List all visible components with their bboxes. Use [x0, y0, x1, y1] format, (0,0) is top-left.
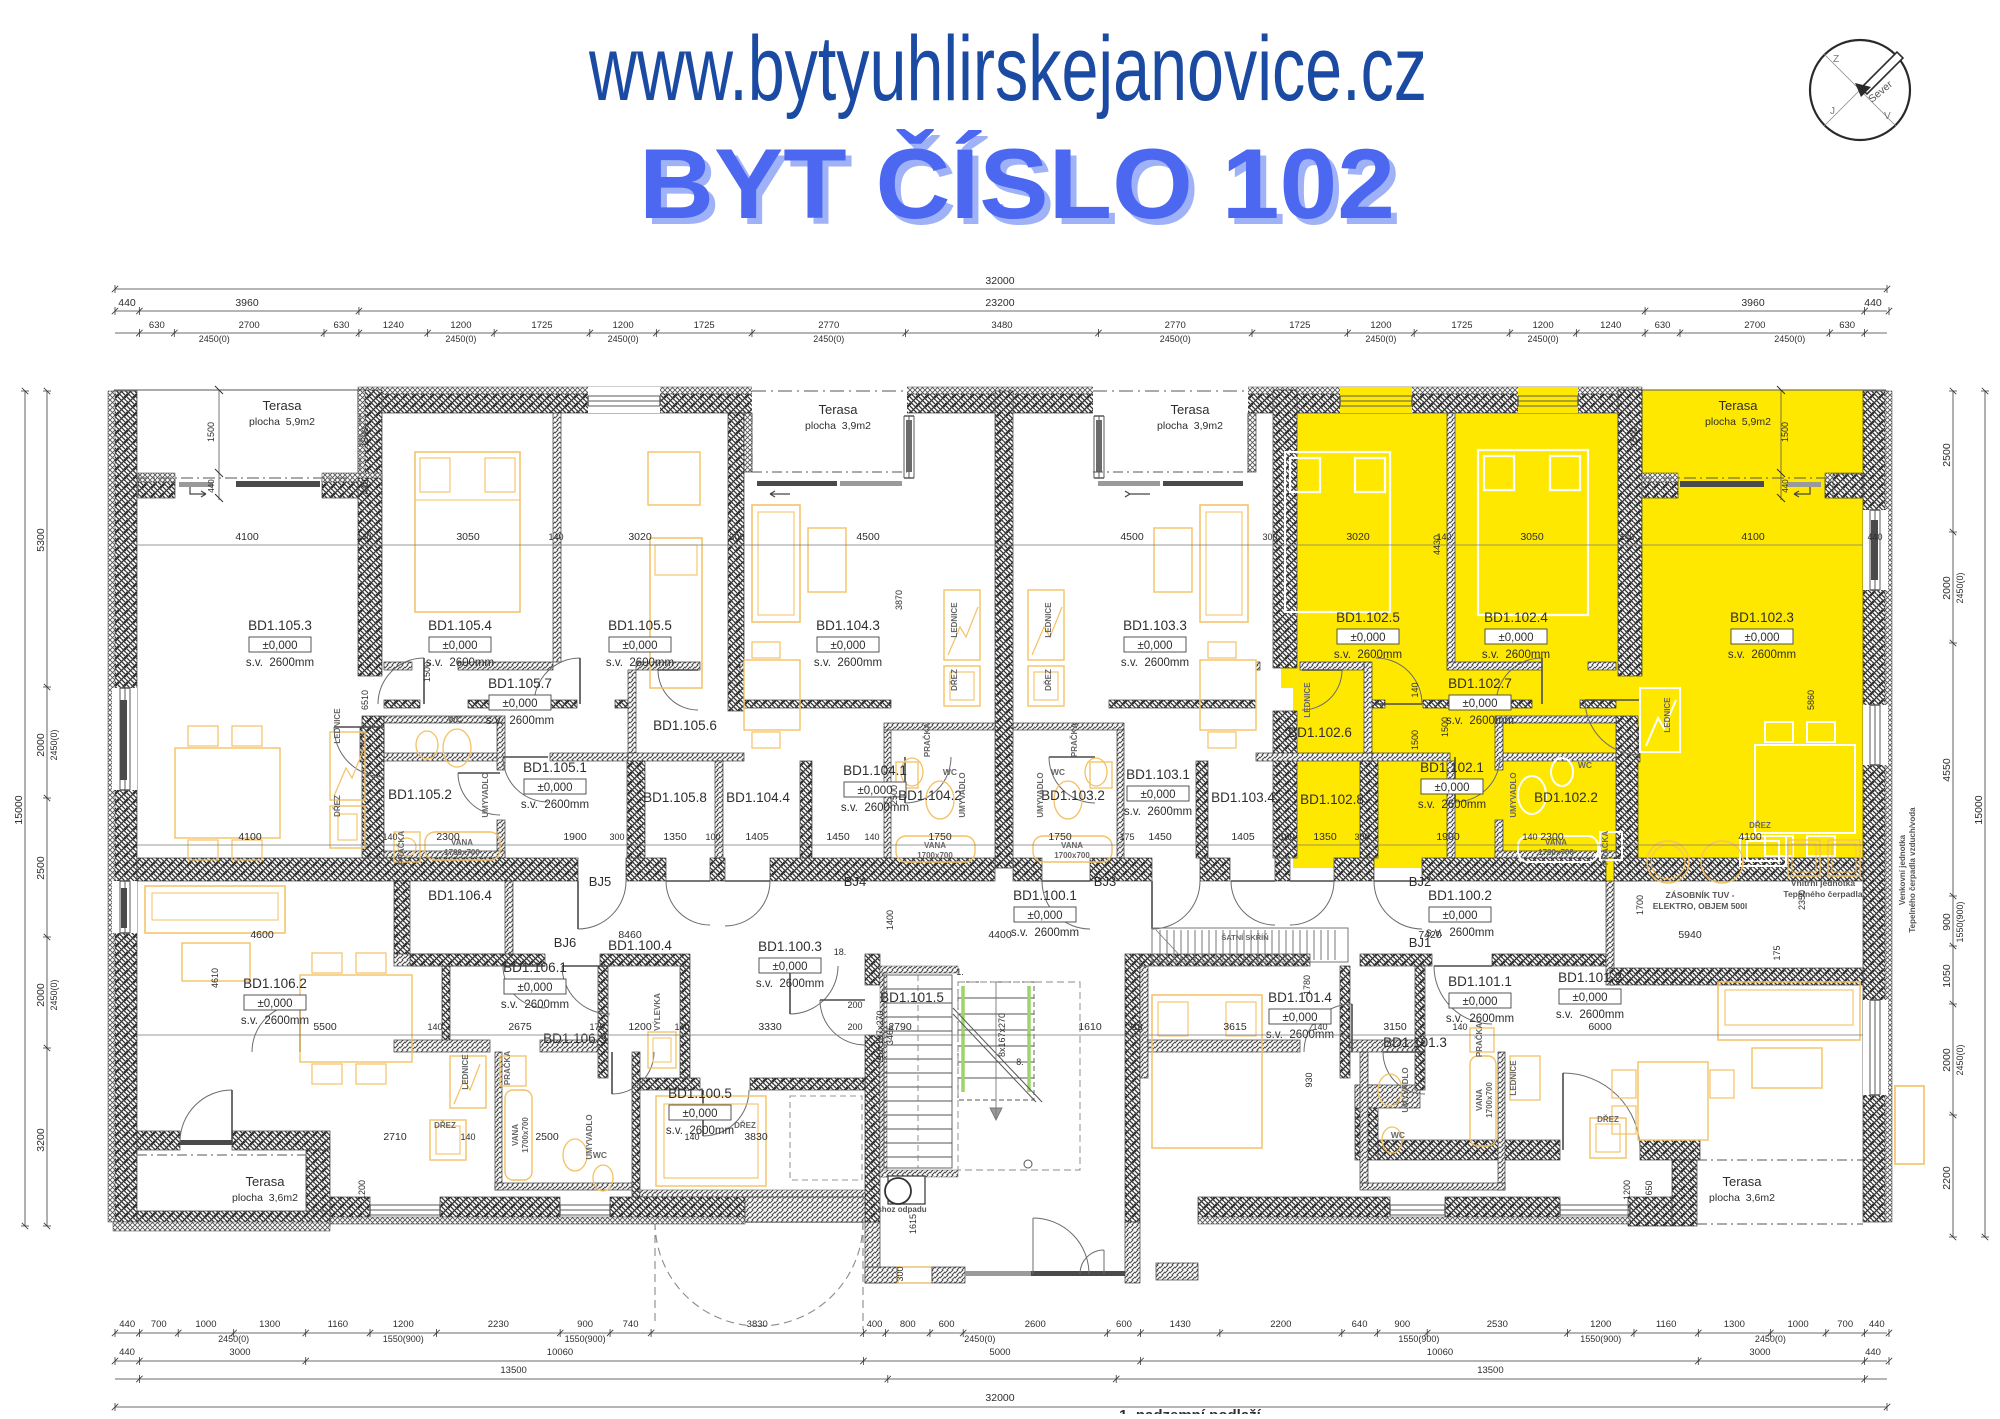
svg-text:ELEKTRO, OBJEM 500l: ELEKTRO, OBJEM 500l	[1653, 901, 1747, 911]
svg-text:Tepelného čerpadla vzduch/voda: Tepelného čerpadla vzduch/voda	[1908, 807, 1917, 933]
svg-text:1450: 1450	[826, 831, 850, 843]
svg-text:LEDNICE: LEDNICE	[333, 708, 342, 744]
svg-text:s.v. 2600mm: s.v. 2600mm	[814, 657, 882, 669]
svg-text:PRAČKA: PRAČKA	[1601, 831, 1610, 865]
svg-text:140: 140	[1410, 682, 1420, 697]
svg-text:1200: 1200	[1622, 1180, 1632, 1200]
svg-text:2700: 2700	[1744, 320, 1765, 331]
svg-text:1725: 1725	[531, 320, 552, 331]
svg-text:300: 300	[1262, 532, 1277, 542]
svg-text:VANA: VANA	[1475, 1089, 1484, 1111]
svg-text:DŘEZ: DŘEZ	[734, 1121, 756, 1130]
svg-text:BD1.106.1: BD1.106.1	[503, 960, 567, 975]
svg-text:4100: 4100	[235, 531, 259, 543]
svg-text:J: J	[1830, 106, 1835, 117]
svg-text:1160: 1160	[1656, 1319, 1676, 1330]
svg-text:2000: 2000	[1941, 576, 1953, 600]
svg-text:s.v. 2600mm: s.v. 2600mm	[486, 715, 554, 727]
svg-text:440: 440	[119, 1347, 135, 1358]
svg-text:WC: WC	[1051, 767, 1065, 777]
svg-text:1430: 1430	[1170, 1319, 1191, 1330]
svg-text:1200: 1200	[450, 320, 471, 331]
svg-text:plocha 3,6m2: plocha 3,6m2	[232, 1192, 298, 1204]
svg-text:BD1.101.3: BD1.101.3	[1383, 1035, 1447, 1050]
svg-text:s.v. 2600mm: s.v. 2600mm	[1011, 927, 1079, 939]
svg-text:1750: 1750	[1048, 831, 1072, 843]
svg-text:UMYVADLO: UMYVADLO	[958, 772, 967, 817]
svg-text:2450(0): 2450(0)	[218, 1334, 249, 1344]
svg-text:±0,000: ±0,000	[442, 640, 477, 652]
svg-text:2675: 2675	[508, 1021, 532, 1033]
svg-text:2200: 2200	[1270, 1319, 1291, 1330]
svg-text:BD1.101.5: BD1.101.5	[880, 990, 944, 1005]
svg-text:5940: 5940	[1678, 929, 1702, 941]
svg-text:BD1.103.4: BD1.103.4	[1211, 790, 1275, 805]
svg-text:1300: 1300	[1724, 1319, 1745, 1330]
svg-text:1900: 1900	[1436, 831, 1460, 843]
svg-text:±0,000: ±0,000	[1744, 632, 1779, 644]
svg-text:s.v. 2600mm: s.v. 2600mm	[426, 657, 494, 669]
svg-text:800: 800	[900, 1319, 916, 1330]
svg-text:1700x700: 1700x700	[1054, 851, 1090, 860]
svg-text:BD1.102.5: BD1.102.5	[1336, 610, 1400, 625]
svg-text:s.v. 2600mm: s.v. 2600mm	[1446, 715, 1514, 727]
svg-text:BD1.102.7: BD1.102.7	[1448, 676, 1512, 691]
svg-text:2710: 2710	[383, 1131, 407, 1143]
svg-text:1050: 1050	[1941, 964, 1953, 988]
svg-text:5000: 5000	[989, 1347, 1010, 1358]
svg-text:BD1.102.8: BD1.102.8	[1300, 792, 1364, 807]
svg-text:318: 318	[1127, 1022, 1142, 1032]
svg-text:1550(900): 1550(900)	[1580, 1334, 1621, 1344]
svg-text:440: 440	[1867, 532, 1882, 542]
svg-text:BD1.100.5: BD1.100.5	[668, 1086, 732, 1101]
svg-text:BD1.106.3: BD1.106.3	[543, 1031, 607, 1046]
svg-text:±0,000: ±0,000	[1137, 640, 1172, 652]
svg-text:1500: 1500	[1440, 717, 1450, 737]
svg-text:2450(0): 2450(0)	[1755, 1334, 1786, 1344]
svg-text:2450(0): 2450(0)	[49, 729, 59, 760]
svg-text:2000: 2000	[35, 733, 47, 757]
svg-text:±0,000: ±0,000	[1434, 782, 1469, 794]
svg-text:Terasa: Terasa	[1170, 402, 1210, 417]
svg-text:±0,000: ±0,000	[262, 640, 297, 652]
svg-text:±0,000: ±0,000	[830, 640, 865, 652]
svg-text:740: 740	[623, 1319, 639, 1330]
svg-text:2500: 2500	[35, 856, 47, 880]
svg-text:UMYVADLO: UMYVADLO	[1509, 772, 1518, 817]
svg-text:630: 630	[1839, 320, 1855, 331]
svg-text:±0,000: ±0,000	[682, 1108, 717, 1120]
svg-text:s.v. 2600mm: s.v. 2600mm	[606, 657, 674, 669]
svg-text:PRAČKA: PRAČKA	[923, 723, 932, 757]
svg-text:s.v. 2600mm: s.v. 2600mm	[501, 999, 569, 1011]
svg-text:WC: WC	[593, 1150, 607, 1160]
svg-text:±0,000: ±0,000	[772, 961, 807, 973]
svg-text:700: 700	[151, 1319, 167, 1330]
svg-text:140: 140	[1452, 1022, 1467, 1032]
svg-text:BJ5: BJ5	[589, 874, 611, 889]
svg-text:15000: 15000	[1973, 795, 1985, 824]
svg-text:300: 300	[609, 832, 624, 842]
svg-text:3960: 3960	[1741, 297, 1765, 309]
svg-text:140: 140	[382, 832, 397, 842]
svg-text:s.v. 2600mm: s.v. 2600mm	[1556, 1009, 1624, 1021]
svg-text:1725: 1725	[1289, 320, 1310, 331]
svg-text:s.v. 2600mm: s.v. 2600mm	[1482, 649, 1550, 661]
svg-text:DŘEZ: DŘEZ	[1597, 1115, 1619, 1124]
svg-text:BD1.105.7: BD1.105.7	[488, 676, 552, 691]
svg-text:7420: 7420	[1418, 929, 1442, 941]
svg-text:8x167x270: 8x167x270	[997, 1013, 1007, 1057]
svg-text:Terasa: Terasa	[262, 398, 302, 413]
svg-text:4100: 4100	[1738, 831, 1762, 843]
svg-text:BD1.105.5: BD1.105.5	[608, 618, 672, 633]
svg-text:1200: 1200	[628, 1021, 652, 1033]
svg-text:VANA: VANA	[511, 1124, 520, 1146]
svg-text:BD1.104.1: BD1.104.1	[843, 763, 907, 778]
svg-text:3830: 3830	[747, 1319, 768, 1330]
svg-text:BD1.103.2: BD1.103.2	[1041, 788, 1105, 803]
svg-text:3480: 3480	[991, 320, 1012, 331]
svg-text:900: 900	[1394, 1319, 1410, 1330]
svg-text:2770: 2770	[1165, 320, 1186, 331]
svg-text:Terasa: Terasa	[818, 402, 858, 417]
svg-text:PRAČKA: PRAČKA	[397, 831, 406, 865]
svg-text:s.v. 2600mm: s.v. 2600mm	[241, 1015, 309, 1027]
svg-text:1550(900): 1550(900)	[383, 1334, 424, 1344]
svg-text:140: 140	[1522, 832, 1537, 842]
svg-text:6510: 6510	[360, 690, 370, 710]
svg-text:440: 440	[1864, 297, 1882, 309]
svg-text:2770: 2770	[818, 320, 839, 331]
svg-text:1400: 1400	[885, 910, 895, 930]
svg-text:2700: 2700	[239, 320, 260, 331]
svg-text:1200: 1200	[1532, 320, 1553, 331]
svg-text:23200: 23200	[985, 297, 1014, 309]
svg-text:1780: 1780	[1302, 975, 1312, 995]
svg-text:WC: WC	[1391, 1130, 1405, 1140]
svg-text:±0,000: ±0,000	[502, 698, 537, 710]
svg-text:640: 640	[1352, 1319, 1368, 1330]
svg-text:DŘEZ: DŘEZ	[434, 1121, 456, 1130]
svg-text:plocha 5,9m2: plocha 5,9m2	[249, 416, 315, 428]
svg-text:1000: 1000	[1788, 1319, 1809, 1330]
svg-text:1240: 1240	[1600, 320, 1621, 331]
svg-text:8460: 8460	[618, 929, 642, 941]
svg-text:3050: 3050	[456, 531, 480, 543]
svg-text:2500: 2500	[1941, 443, 1953, 467]
svg-text:1500: 1500	[360, 427, 370, 447]
svg-text:ŠATNÍ SKŘÍŇ: ŠATNÍ SKŘÍŇ	[1221, 933, 1268, 942]
svg-text:440: 440	[119, 1319, 135, 1330]
svg-text:BD1.102.3: BD1.102.3	[1730, 610, 1794, 625]
svg-text:Tepelného čerpadla: Tepelného čerpadla	[1783, 889, 1862, 899]
svg-text:140: 140	[1312, 1022, 1327, 1032]
svg-text:±0,000: ±0,000	[537, 782, 572, 794]
svg-text:4400: 4400	[988, 929, 1012, 941]
svg-text:s.v. 2600mm: s.v. 2600mm	[1728, 649, 1796, 661]
svg-text:100: 100	[1279, 832, 1294, 842]
svg-text:BD1.100.2: BD1.100.2	[1428, 888, 1492, 903]
svg-text:shoz odpadu: shoz odpadu	[877, 1205, 926, 1214]
svg-text:BJ4: BJ4	[844, 874, 866, 889]
svg-text:3960: 3960	[235, 297, 259, 309]
svg-text:Z: Z	[1833, 54, 1839, 65]
svg-text:2000: 2000	[35, 983, 47, 1007]
svg-text:2450(0): 2450(0)	[1365, 334, 1396, 344]
svg-text:8.: 8.	[1016, 1057, 1024, 1067]
svg-text:BD1.105.1: BD1.105.1	[523, 760, 587, 775]
svg-text:2450(0): 2450(0)	[49, 979, 59, 1010]
svg-text:1200: 1200	[1590, 1319, 1611, 1330]
svg-text:6000: 6000	[1588, 1021, 1612, 1033]
svg-text:630: 630	[1655, 320, 1671, 331]
svg-text:BJ6: BJ6	[554, 935, 576, 950]
svg-text:DŘEZ: DŘEZ	[950, 669, 959, 691]
svg-text:BD1.105.6: BD1.105.6	[653, 718, 717, 733]
svg-text:3150: 3150	[1383, 1021, 1407, 1033]
svg-text:600: 600	[939, 1319, 955, 1330]
svg-text:LEDNICE: LEDNICE	[1509, 1060, 1518, 1096]
svg-text:2530: 2530	[1487, 1319, 1508, 1330]
svg-text:UMYVADLO: UMYVADLO	[481, 772, 490, 817]
svg-text:3830: 3830	[744, 1131, 768, 1143]
svg-text:UMYVADLO: UMYVADLO	[1036, 772, 1045, 817]
svg-text:4610: 4610	[210, 968, 220, 988]
svg-text:±0,000: ±0,000	[1350, 632, 1385, 644]
svg-text:1725: 1725	[1451, 320, 1472, 331]
svg-text:s.v. 2600mm: s.v. 2600mm	[521, 799, 589, 811]
svg-text:DŘEZ: DŘEZ	[1749, 821, 1771, 830]
svg-text:200: 200	[847, 1022, 862, 1032]
svg-text:±0,000: ±0,000	[517, 982, 552, 994]
svg-text:3000: 3000	[229, 1347, 250, 1358]
svg-text:4500: 4500	[856, 531, 880, 543]
svg-text:2450(0): 2450(0)	[1774, 334, 1805, 344]
svg-text:±0,000: ±0,000	[1140, 789, 1175, 801]
svg-text:s.v. 2600mm: s.v. 2600mm	[1418, 799, 1486, 811]
svg-text:1700x700: 1700x700	[444, 848, 480, 857]
svg-text:BD1.100.1: BD1.100.1	[1013, 888, 1077, 903]
svg-text:2300: 2300	[436, 831, 460, 843]
svg-text:Terasa: Terasa	[245, 1174, 285, 1189]
svg-text:±0,000: ±0,000	[622, 640, 657, 652]
svg-text:2450(0): 2450(0)	[813, 334, 844, 344]
svg-text:PRAČKA: PRAČKA	[1475, 1023, 1484, 1057]
svg-text:4100: 4100	[238, 831, 262, 843]
svg-text:2600: 2600	[1025, 1319, 1046, 1330]
svg-text:LEDNICE: LEDNICE	[461, 1054, 470, 1090]
svg-text:1300: 1300	[259, 1319, 280, 1330]
svg-text:±0,000: ±0,000	[1027, 910, 1062, 922]
svg-text:630: 630	[334, 320, 350, 331]
svg-text:5500: 5500	[313, 1021, 337, 1033]
svg-text:1200: 1200	[613, 320, 634, 331]
svg-text:200: 200	[847, 1000, 862, 1010]
svg-text:BD1.101.2: BD1.101.2	[1558, 970, 1622, 985]
svg-text:VÝLEVKA: VÝLEVKA	[653, 993, 662, 1031]
svg-text:1240: 1240	[383, 320, 404, 331]
svg-text:±0,000: ±0,000	[1462, 698, 1497, 710]
svg-text:BD1.103.3: BD1.103.3	[1123, 618, 1187, 633]
svg-text:140: 140	[684, 1132, 699, 1142]
svg-text:1725: 1725	[694, 320, 715, 331]
svg-text:1405: 1405	[1231, 831, 1255, 843]
svg-text:1500: 1500	[1410, 730, 1420, 750]
svg-text:1350: 1350	[663, 831, 687, 843]
svg-text:ZÁSOBNÍK TUV -: ZÁSOBNÍK TUV -	[1666, 890, 1735, 900]
svg-text:140: 140	[864, 832, 879, 842]
svg-text:www.bytyuhlirskejanovice.cz: www.bytyuhlirskejanovice.cz	[588, 18, 1427, 120]
svg-text:plocha 3,9m2: plocha 3,9m2	[1157, 420, 1223, 432]
svg-text:440: 440	[360, 479, 370, 494]
svg-text:Venkovní jednotka: Venkovní jednotka	[1898, 834, 1907, 905]
svg-text:630: 630	[149, 320, 165, 331]
svg-text:2450(0): 2450(0)	[964, 1334, 995, 1344]
svg-text:BD1.102.2: BD1.102.2	[1534, 790, 1598, 805]
svg-text:10x167x270: 10x167x270	[875, 1010, 885, 1059]
svg-text:100: 100	[705, 832, 720, 842]
svg-text:2350: 2350	[1797, 890, 1807, 910]
svg-text:WC: WC	[448, 714, 462, 724]
svg-text:2200: 2200	[1941, 1166, 1953, 1190]
svg-text:BD1.104.2: BD1.104.2	[898, 788, 962, 803]
svg-text:440: 440	[207, 479, 216, 493]
svg-text:32000: 32000	[985, 275, 1014, 287]
svg-text:1500: 1500	[206, 422, 216, 442]
svg-text:140: 140	[1619, 532, 1634, 542]
svg-text:BD1.102.4: BD1.102.4	[1484, 610, 1548, 625]
svg-text:1000: 1000	[195, 1319, 216, 1330]
svg-text:s.v. 2600mm: s.v. 2600mm	[246, 657, 314, 669]
svg-text:plocha 5,9m2: plocha 5,9m2	[1705, 416, 1771, 428]
svg-text:BD1.105.2: BD1.105.2	[388, 787, 452, 802]
svg-text:BJ2: BJ2	[1409, 874, 1431, 889]
svg-text:900: 900	[1941, 913, 1953, 931]
svg-text:BYT ČÍSLO 102: BYT ČÍSLO 102	[639, 128, 1395, 239]
svg-text:2500: 2500	[889, 785, 899, 805]
svg-text:440: 440	[118, 297, 136, 309]
svg-text:1200: 1200	[357, 1180, 367, 1200]
svg-text:WC: WC	[1578, 760, 1592, 770]
svg-text:PRAČKA: PRAČKA	[503, 1051, 512, 1085]
svg-text:15000: 15000	[13, 795, 25, 824]
svg-text:700: 700	[1837, 1319, 1853, 1330]
svg-text:BD1.104.4: BD1.104.4	[726, 790, 790, 805]
svg-text:600: 600	[1116, 1319, 1132, 1330]
svg-text:2450(0): 2450(0)	[445, 334, 476, 344]
svg-text:LEDNICE: LEDNICE	[950, 602, 959, 638]
svg-text:BD1.103.1: BD1.103.1	[1126, 767, 1190, 782]
svg-text:±0,000: ±0,000	[1442, 910, 1477, 922]
svg-text:s.v. 2600mm: s.v. 2600mm	[1124, 806, 1192, 818]
svg-text:1500: 1500	[1629, 427, 1639, 447]
svg-text:BD1.106.4: BD1.106.4	[428, 888, 492, 903]
svg-text:LEDNICE: LEDNICE	[1303, 682, 1312, 718]
svg-text:900: 900	[577, 1319, 593, 1330]
svg-text:4100: 4100	[1741, 531, 1765, 543]
svg-text:10060: 10060	[1427, 1347, 1453, 1358]
svg-text:1610: 1610	[1078, 1021, 1102, 1033]
svg-text:1450: 1450	[1148, 831, 1172, 843]
svg-text:140: 140	[356, 532, 371, 542]
svg-text:LEDNICE: LEDNICE	[1044, 602, 1053, 638]
svg-text:1200: 1200	[1370, 320, 1391, 331]
svg-text:2450(0): 2450(0)	[1955, 572, 1965, 603]
svg-text:175: 175	[1119, 832, 1134, 842]
svg-text:300: 300	[729, 532, 744, 542]
svg-text:4500: 4500	[1120, 531, 1144, 543]
svg-text:1900: 1900	[563, 831, 587, 843]
svg-text:BD1.105.4: BD1.105.4	[428, 618, 492, 633]
svg-text:1160: 1160	[328, 1319, 348, 1330]
svg-text:Vnitřní jednotka: Vnitřní jednotka	[1791, 878, 1856, 888]
svg-text:1.: 1.	[956, 967, 964, 977]
svg-text:WC: WC	[943, 767, 957, 777]
svg-text:32000: 32000	[985, 1392, 1014, 1404]
svg-text:s.v. 2600mm: s.v. 2600mm	[756, 978, 824, 990]
svg-text:3870: 3870	[894, 590, 904, 610]
svg-text:±0,000: ±0,000	[1462, 996, 1497, 1008]
svg-text:s.v. 2600mm: s.v. 2600mm	[666, 1125, 734, 1137]
svg-text:±0,000: ±0,000	[857, 785, 892, 797]
svg-text:13500: 13500	[500, 1365, 526, 1376]
svg-text:BD1.105.3: BD1.105.3	[248, 618, 312, 633]
svg-text:1405: 1405	[745, 831, 769, 843]
svg-text:1200: 1200	[393, 1319, 414, 1330]
svg-text:PRAČKA: PRAČKA	[1070, 723, 1079, 757]
svg-text:9.: 9.	[876, 1054, 884, 1064]
svg-text:2450(0): 2450(0)	[1160, 334, 1191, 344]
svg-text:BJ3: BJ3	[1094, 874, 1116, 889]
svg-text:1700x700: 1700x700	[1538, 848, 1574, 857]
svg-text:1500: 1500	[1780, 422, 1790, 442]
svg-text:Terasa: Terasa	[1722, 1174, 1762, 1189]
svg-text:1700x700: 1700x700	[1485, 1082, 1494, 1118]
svg-text:175: 175	[1772, 945, 1782, 960]
svg-text:BD1.106.2: BD1.106.2	[243, 976, 307, 991]
svg-text:4600: 4600	[250, 929, 274, 941]
svg-text:plocha 3,9m2: plocha 3,9m2	[805, 420, 871, 432]
svg-text:DŘEZ: DŘEZ	[333, 795, 342, 817]
svg-text:BD1.105.8: BD1.105.8	[643, 790, 707, 805]
svg-text:BD1.102.6: BD1.102.6	[1288, 725, 1352, 740]
svg-text:BD1.101.4: BD1.101.4	[1268, 990, 1332, 1005]
svg-text:LEDNICE: LEDNICE	[1663, 697, 1672, 733]
svg-text:1615: 1615	[908, 1214, 918, 1234]
svg-text:DŘEZ: DŘEZ	[1044, 669, 1053, 691]
svg-text:650: 650	[1644, 1180, 1654, 1195]
svg-text:±0,000: ±0,000	[1572, 992, 1607, 1004]
svg-text:2000: 2000	[1941, 1048, 1953, 1072]
svg-text:2450(0): 2450(0)	[1955, 1044, 1965, 1075]
svg-text:300: 300	[1354, 832, 1369, 842]
svg-text:140: 140	[460, 1132, 475, 1142]
svg-text:400: 400	[867, 1319, 883, 1330]
svg-text:3020: 3020	[1346, 531, 1370, 543]
svg-text:BD1.101.1: BD1.101.1	[1448, 974, 1512, 989]
svg-text:3615: 3615	[1223, 1021, 1247, 1033]
svg-text:1. nadzemní podlaží: 1. nadzemní podlaží	[1119, 1407, 1262, 1414]
svg-text:3330: 3330	[758, 1021, 782, 1033]
svg-text:1550(900): 1550(900)	[1398, 1334, 1439, 1344]
svg-text:2450(0): 2450(0)	[608, 334, 639, 344]
svg-text:4430: 4430	[1432, 535, 1442, 555]
svg-text:4550: 4550	[1941, 758, 1953, 782]
svg-text:s.v. 2600mm: s.v. 2600mm	[1334, 649, 1402, 661]
svg-text:BD1.100.3: BD1.100.3	[758, 939, 822, 954]
